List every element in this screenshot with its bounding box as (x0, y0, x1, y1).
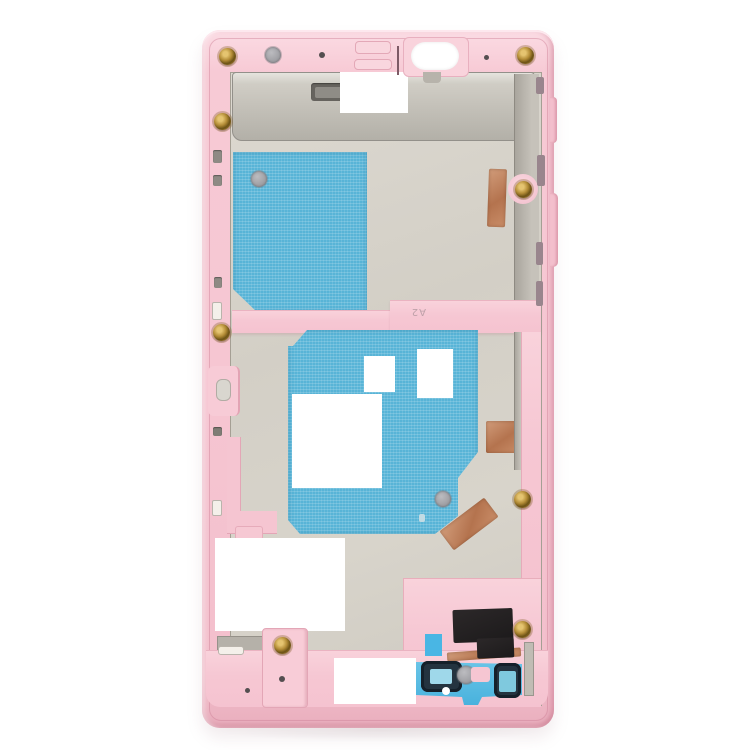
right-rail-slot-3 (536, 242, 543, 265)
top-clip-tab-2 (354, 59, 392, 70)
screw-top-right (517, 47, 534, 64)
right-rail-slot-2 (537, 155, 545, 186)
bottom-left-hole (245, 688, 250, 693)
shield-notch (423, 72, 441, 83)
bracket-hole (279, 676, 285, 682)
headphone-jack-hole (216, 379, 231, 401)
screw-right-mid (514, 491, 531, 508)
left-rail-slot-1 (213, 150, 222, 163)
bottom-left-cutout (215, 538, 345, 631)
screw-top-left (219, 48, 236, 65)
crossbar-left (232, 310, 392, 333)
flex-screw-hole (442, 687, 450, 695)
flex-pink-notch (471, 667, 490, 682)
flex-gasket-left-window (430, 669, 452, 684)
front-camera-cutout (411, 42, 459, 70)
copper-tape-strip (487, 169, 507, 228)
adhesive-cutout-large (292, 394, 382, 488)
side-button-rib-upper (550, 97, 557, 143)
left-inner-rib-vertical (227, 437, 241, 519)
right-pink-rail-lower (521, 332, 541, 582)
screw-bracket (274, 637, 291, 654)
bottom-left-white-slot (218, 646, 244, 655)
screw-left-upper (214, 113, 231, 130)
side-button-rib-lower (550, 193, 558, 267)
bottom-center-cutout (334, 658, 416, 704)
product-photo-scene: A2 (0, 0, 750, 750)
flex-gasket-right-window (499, 671, 516, 692)
top-center-cutout (340, 72, 408, 113)
frame-marking-label: A2 (398, 303, 426, 317)
adhesive-cutout-small (364, 356, 395, 392)
adhesive-hole-sticker-1 (251, 171, 267, 187)
top-alignment-hole-left (319, 52, 325, 58)
screw-right-lower (514, 621, 531, 638)
left-rail-square-slot (213, 427, 222, 436)
screw-left-mid (213, 324, 230, 341)
right-rail-slot-4 (536, 281, 543, 306)
top-seam-line (397, 46, 399, 75)
screw-right-upper (515, 181, 532, 198)
left-rail-white-slot-2 (212, 500, 222, 516)
adhesive-cutout-mid (417, 349, 453, 398)
adhesive-hole-sticker-2 (435, 491, 451, 507)
cyan-patch (425, 634, 442, 656)
camera-hole-sticker (265, 47, 281, 63)
left-rail-slot-2 (213, 175, 222, 186)
shield-connector-slot-inner (315, 87, 342, 98)
right-rail-slot-1 (536, 77, 544, 94)
top-clip-tab-1 (355, 41, 391, 54)
adhesive-speck (419, 514, 425, 522)
left-rail-white-slot-1 (212, 302, 222, 320)
left-rail-slot-3 (214, 277, 222, 288)
right-contact-strip (524, 642, 534, 696)
top-alignment-hole-right (484, 55, 489, 60)
loudspeaker-contact-extension (477, 637, 515, 658)
